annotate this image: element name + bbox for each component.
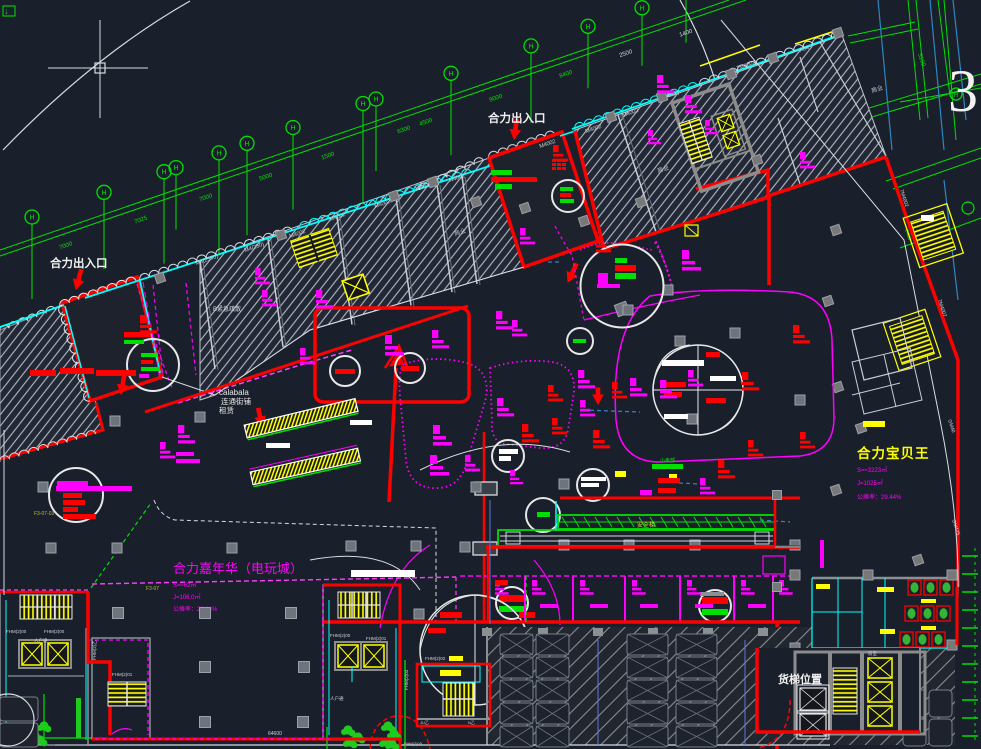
- svg-text:合力嘉年华（电玩城）: 合力嘉年华（电玩城）: [173, 561, 303, 576]
- svg-text:S=≈3223㎡: S=≈3223㎡: [857, 466, 887, 474]
- svg-text:FHM(2)03: FHM(2)03: [404, 669, 409, 690]
- svg-text:FHM(2)01: FHM(2)01: [112, 672, 133, 677]
- svg-text:H: H: [448, 71, 453, 78]
- svg-text:公摊率：29.44%: 公摊率：29.44%: [857, 493, 902, 501]
- svg-text:H: H: [528, 43, 533, 50]
- svg-text:人户通: 人户通: [330, 695, 344, 702]
- svg-text:FHM(2)乙: FHM(2)乙: [91, 640, 97, 660]
- svg-text:H: H: [585, 24, 590, 31]
- svg-text:H: H: [290, 125, 295, 132]
- svg-text:H: H: [161, 169, 166, 176]
- svg-text:B紧急疏散: B紧急疏散: [213, 305, 241, 313]
- svg-text:FHM(2)00: FHM(2)00: [330, 633, 351, 638]
- svg-text:合力出入口: 合力出入口: [488, 111, 546, 125]
- svg-text:FHM(2)00: FHM(2)00: [44, 629, 65, 634]
- svg-text:合力出入口: 合力出入口: [50, 256, 108, 270]
- svg-text:64600: 64600: [268, 731, 282, 737]
- svg-text:J=1025㎡: J=1025㎡: [857, 479, 883, 487]
- svg-text:H: H: [639, 5, 644, 12]
- svg-text:前室: 前室: [868, 650, 877, 657]
- svg-text:H: H: [360, 101, 365, 108]
- svg-text:人户通: 人户通: [34, 637, 48, 644]
- svg-text:↓: ↓: [4, 6, 9, 16]
- svg-text:安全梯: 安全梯: [637, 521, 655, 529]
- svg-text:FHM(2)00: FHM(2)00: [6, 629, 27, 634]
- svg-text:H: H: [244, 141, 249, 148]
- svg-text:N乙: N乙: [468, 719, 475, 725]
- svg-text:H: H: [101, 190, 106, 197]
- svg-text:FHM(2)05: FHM(2)05: [404, 741, 423, 746]
- svg-text:calabala: calabala: [219, 388, 249, 397]
- svg-text:F3-07: F3-07: [146, 586, 159, 592]
- svg-text:货梯位置: 货梯位置: [777, 672, 822, 686]
- svg-text:连通街铺: 连通街铺: [221, 396, 251, 406]
- svg-text:H: H: [29, 215, 34, 222]
- svg-text:37: 37: [948, 58, 981, 124]
- svg-text:合力宝贝王: 合力宝贝王: [857, 445, 930, 461]
- svg-text:租赁: 租赁: [219, 406, 234, 415]
- svg-text:F3-07-03: F3-07-03: [34, 511, 55, 517]
- svg-text:JU乙: JU乙: [420, 719, 429, 725]
- svg-text:H: H: [216, 150, 221, 157]
- svg-text:H: H: [373, 97, 378, 104]
- svg-text:H: H: [173, 165, 178, 172]
- svg-text:公摊率：29.44%: 公摊率：29.44%: [173, 605, 218, 613]
- svg-text:小卖部: 小卖部: [660, 457, 675, 464]
- svg-text:FHM(2)02: FHM(2)02: [425, 656, 446, 661]
- svg-text:J=106.0㎡: J=106.0㎡: [173, 593, 201, 601]
- svg-text:S=≈62㎡: S=≈62㎡: [173, 581, 196, 589]
- svg-text:FHM(2)01: FHM(2)01: [366, 636, 387, 641]
